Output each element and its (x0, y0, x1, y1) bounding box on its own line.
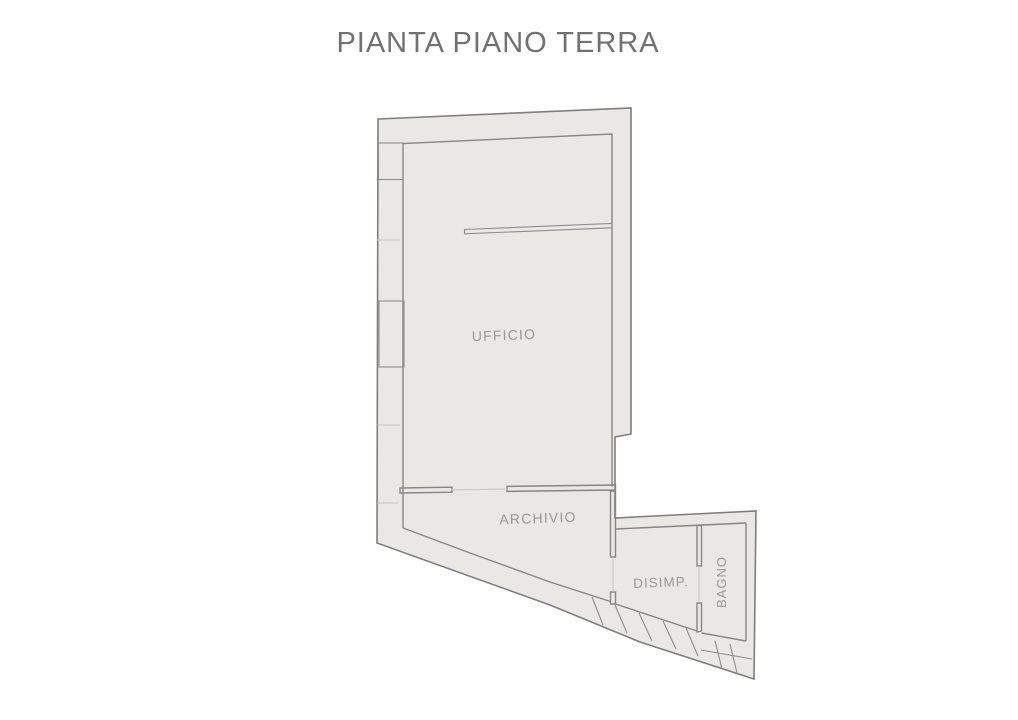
floor-plan-page: PIANTA PIANO TERRA (0, 0, 1018, 720)
floorplan-svg: PIANTA PIANO TERRA (0, 0, 1018, 720)
room-label-bagno: BAGNO (714, 556, 729, 608)
room-label-ufficio: UFFICIO (472, 326, 537, 344)
room-label-disimpegno: DISIMP. (633, 574, 689, 591)
room-label-archivio: ARCHIVIO (499, 509, 577, 528)
page-title: PIANTA PIANO TERRA (336, 27, 659, 59)
